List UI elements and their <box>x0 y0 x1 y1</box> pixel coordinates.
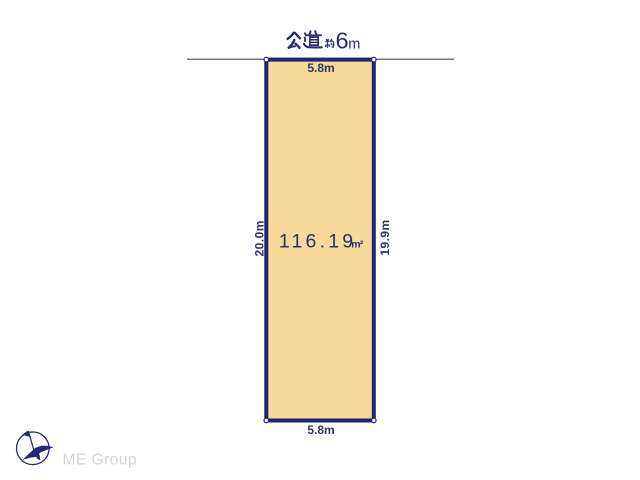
svg-text:m²: m² <box>351 239 364 251</box>
svg-text:5.8m: 5.8m <box>307 423 334 437</box>
svg-text:19.9m: 19.9m <box>378 219 392 255</box>
svg-text:m: m <box>348 36 360 52</box>
svg-text:20.0m: 20.0m <box>252 220 266 256</box>
svg-text:116.19: 116.19 <box>279 231 356 253</box>
svg-text:ME Group: ME Group <box>63 452 138 469</box>
svg-text:6: 6 <box>336 27 349 53</box>
svg-text:5.8m: 5.8m <box>307 61 334 75</box>
